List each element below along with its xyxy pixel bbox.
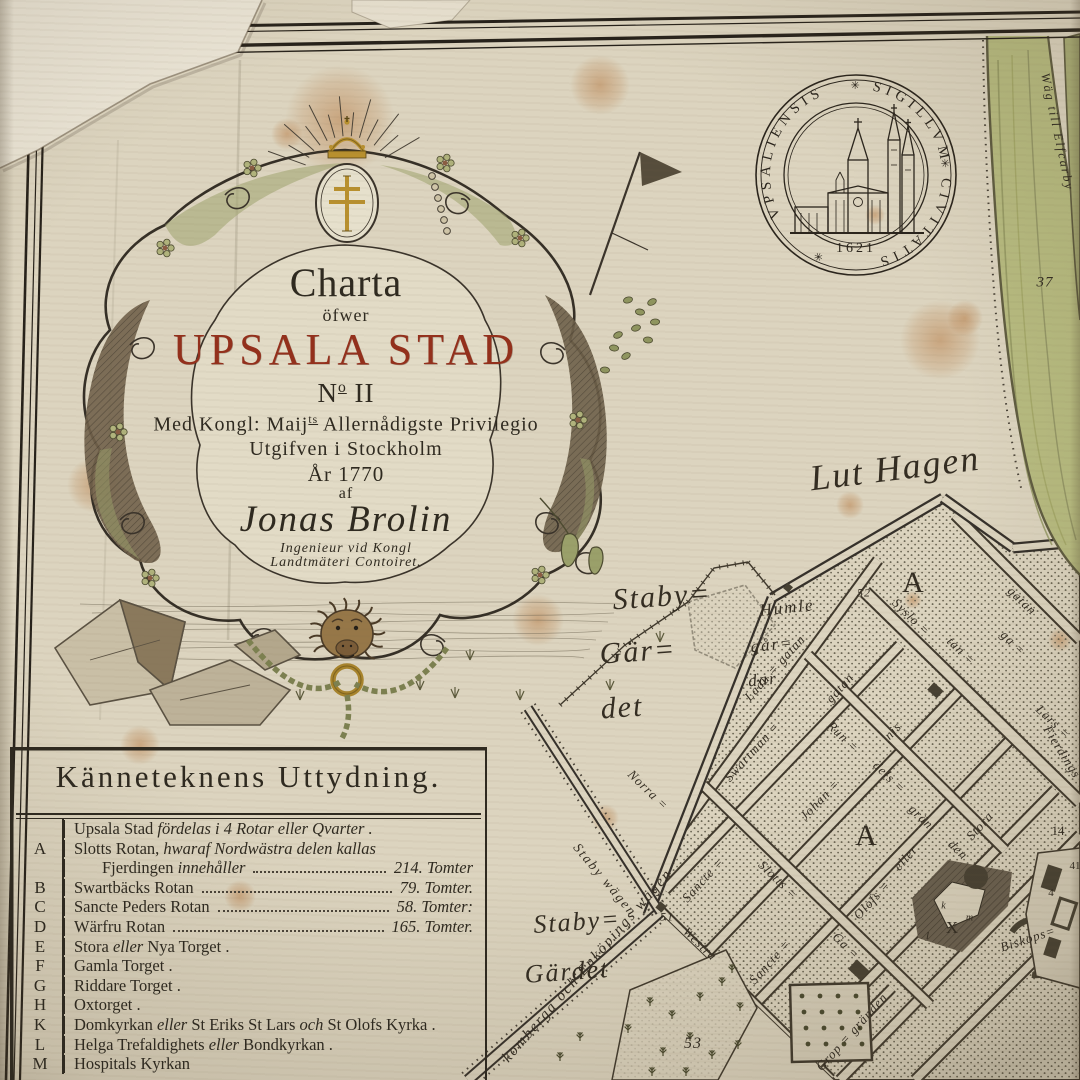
legend-row: MHospitals Kyrkan (18, 1054, 487, 1074)
cartouche-line1: Charta (115, 262, 577, 304)
walled-garden (790, 983, 872, 1062)
author-title-2: Landtmäteri Contoiret. (115, 556, 577, 571)
legend-key: M (18, 1054, 64, 1074)
map-title: UPSALA STAD (115, 327, 577, 373)
published-line: Utgifven i Stockholm (115, 439, 577, 460)
legend-text: Sancte Peders Rotan (64, 897, 210, 917)
legend-key: F (18, 956, 64, 976)
legend-row: LHelga Trefaldighets eller Bondkyrkan . (18, 1035, 487, 1055)
svg-text:✳: ✳ (938, 158, 952, 173)
legend-value: 214. Tomter (394, 858, 487, 878)
legend-text: Fjerdingen innehåller (64, 858, 245, 878)
author-title-1: Ingenieur vid Kongl (115, 542, 577, 557)
legend-key: C (18, 897, 64, 917)
legend-key (18, 858, 64, 878)
cartouche-line2: öfwer (115, 306, 577, 325)
legend-leader (218, 910, 389, 912)
legend-key: B (18, 878, 64, 898)
legend-key: E (18, 937, 64, 957)
legend-text: Gamla Torget . (64, 956, 173, 976)
legend-row: DWärfru Rotan165. Tomter. (18, 917, 487, 937)
svg-text:✳: ✳ (850, 79, 864, 92)
legend-value: 165. Tomter. (392, 917, 487, 937)
legend-key (18, 819, 64, 839)
legend-value: 79. Tomter. (400, 878, 487, 898)
cartouche: Charta öfwer UPSALA STAD No II Med Kongl… (115, 262, 577, 571)
legend-text: Swartbäcks Rotan (64, 878, 194, 898)
legend-rows: Upsala Stad fördelas i 4 Rotar eller Qva… (18, 819, 487, 1074)
author-signature: Jonas Brolin (115, 501, 577, 540)
legend-text: Wärfru Rotan (64, 917, 165, 937)
year-line: År 1770 (115, 463, 577, 485)
legend-key: L (18, 1035, 64, 1055)
legend-text: Helga Trefaldighets eller Bondkyrkan . (64, 1035, 333, 1055)
legend-key: K (18, 1015, 64, 1035)
legend-leader (202, 891, 392, 893)
legend-row: Fjerdingen innehåller214. Tomter (18, 858, 487, 878)
legend-row: GRiddare Torget . (18, 976, 487, 996)
legend-key: D (18, 917, 64, 937)
legend-key: A (18, 839, 64, 859)
legend-text: Oxtorget . (64, 995, 141, 1015)
legend-text: Stora eller Nya Torget . (64, 937, 229, 957)
legend-row: KDomkyrkan eller St Eriks St Lars och St… (18, 1015, 487, 1035)
legend-row: ASlotts Rotan, hwaraf Nordwästra delen k… (18, 839, 487, 859)
map-number: No II (115, 379, 577, 407)
legend-row: BSwartbäcks Rotan79. Tomter. (18, 878, 487, 898)
legend-key: G (18, 976, 64, 996)
legend-text: Slotts Rotan, hwaraf Nordwästra delen ka… (64, 839, 376, 859)
legend-row: CSancte Peders Rotan58. Tomter: (18, 897, 487, 917)
legend-row: EStora eller Nya Torget . (18, 937, 487, 957)
legend-text: Riddare Torget . (64, 976, 181, 996)
legend-row: Upsala Stad fördelas i 4 Rotar eller Qva… (18, 819, 487, 839)
cross-medallion (316, 164, 378, 242)
legend-leader (173, 930, 383, 932)
legend-value: 58. Tomter: (397, 897, 487, 917)
legend-leader (253, 871, 385, 873)
map-sheet: { "cartouche": { "line1": "Charta", "lin… (0, 0, 1080, 1080)
legend-box: Känneteknens Uttydning. Upsala Stad förd… (10, 747, 487, 1080)
legend-text: Hospitals Kyrkan (64, 1054, 190, 1074)
legend-text: Domkyrkan eller St Eriks St Lars och St … (64, 1015, 436, 1035)
legend-title: Känneteknens Uttydning. (10, 747, 487, 809)
legend-key: H (18, 995, 64, 1015)
privilege-line: Med Kongl: Maijts Allernådigste Privileg… (115, 414, 577, 436)
legend-text: Upsala Stad fördelas i 4 Rotar eller Qva… (64, 819, 373, 839)
legend-row: HOxtorget . (18, 995, 487, 1015)
legend-row: FGamla Torget . (18, 956, 487, 976)
seal-year: 1621 (836, 241, 876, 256)
